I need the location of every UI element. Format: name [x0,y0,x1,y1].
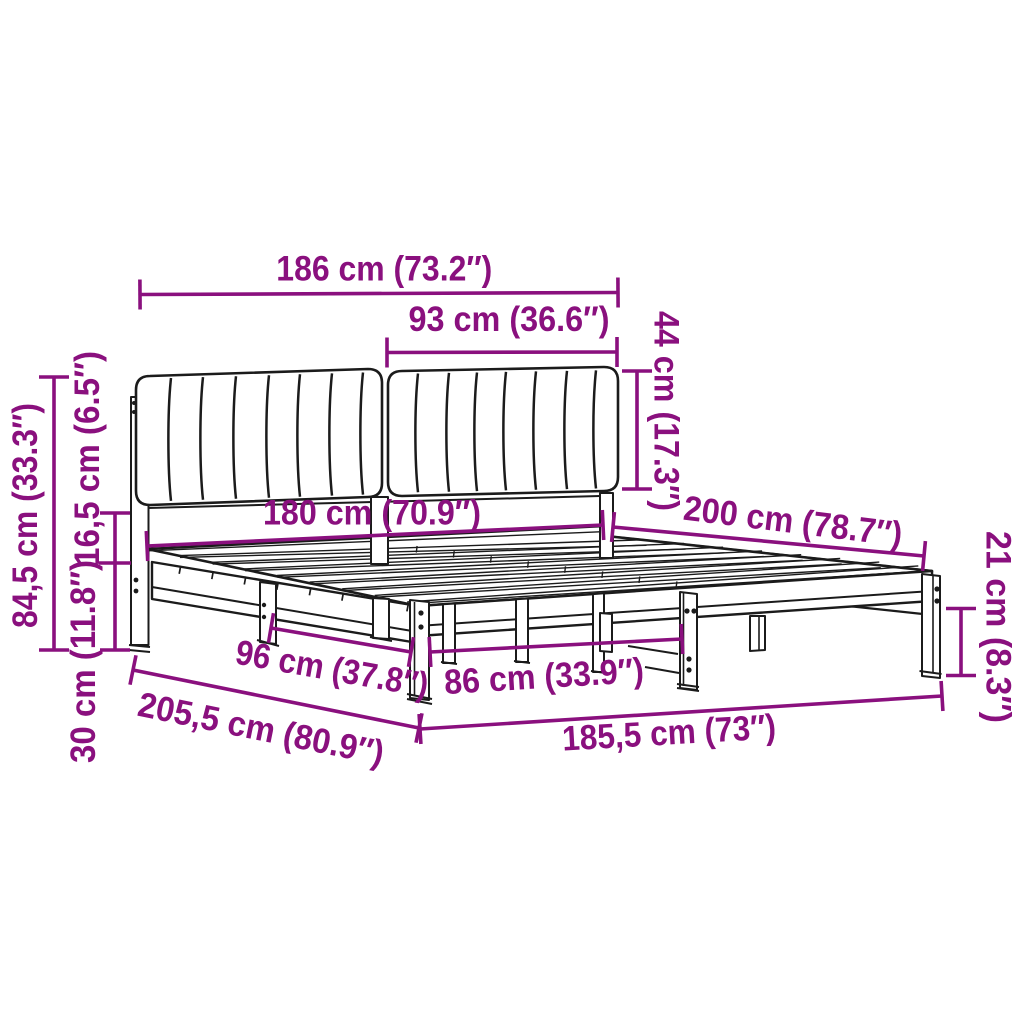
svg-text:186 cm (73.2″): 186 cm (73.2″) [276,250,492,289]
svg-text:16,5 cm (6.5″): 16,5 cm (6.5″) [68,351,107,566]
svg-text:84,5 cm (33.3″): 84,5 cm (33.3″) [6,403,45,628]
svg-text:21 cm (8.3″): 21 cm (8.3″) [979,531,1018,723]
svg-text:180 cm (70.9″): 180 cm (70.9″) [263,494,481,533]
svg-text:93 cm (36.6″): 93 cm (36.6″) [409,300,610,339]
svg-text:44 cm (17.3″): 44 cm (17.3″) [647,311,686,511]
svg-text:30 cm (11.8″): 30 cm (11.8″) [64,560,103,763]
